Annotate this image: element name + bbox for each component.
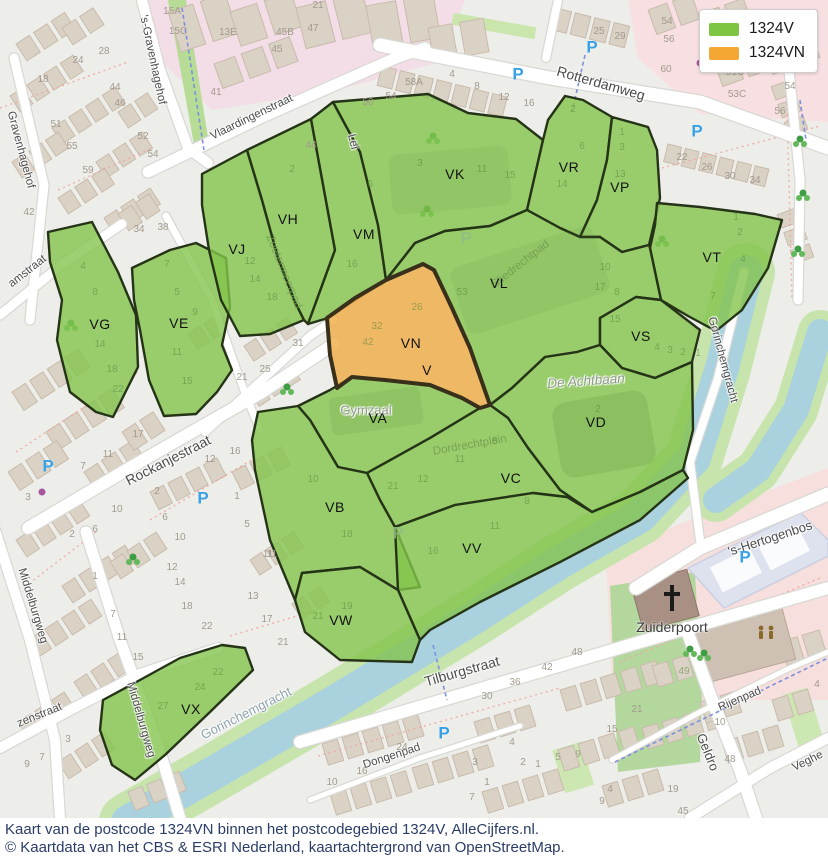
legend-swatch-green-icon — [709, 23, 739, 36]
caption-line2: © Kaartdata van het CBS & ESRI Nederland… — [5, 839, 828, 857]
map-caption: Kaart van de postcode 1324VN binnen het … — [0, 818, 828, 861]
legend-swatch-orange-icon — [709, 47, 739, 60]
caption-line1: Kaart van de postcode 1324VN binnen het … — [5, 821, 828, 839]
legend: 1324V 1324VN — [699, 9, 818, 73]
legend-label-area: 1324V — [749, 20, 794, 38]
map-canvas — [0, 0, 828, 818]
postcode-map-screenshot: 's-GravenhagehofGravenhagehofamstraatVla… — [0, 0, 828, 861]
legend-label-selected: 1324VN — [749, 44, 805, 62]
legend-item-area: 1324V — [709, 17, 805, 41]
legend-item-selected: 1324VN — [709, 41, 805, 65]
